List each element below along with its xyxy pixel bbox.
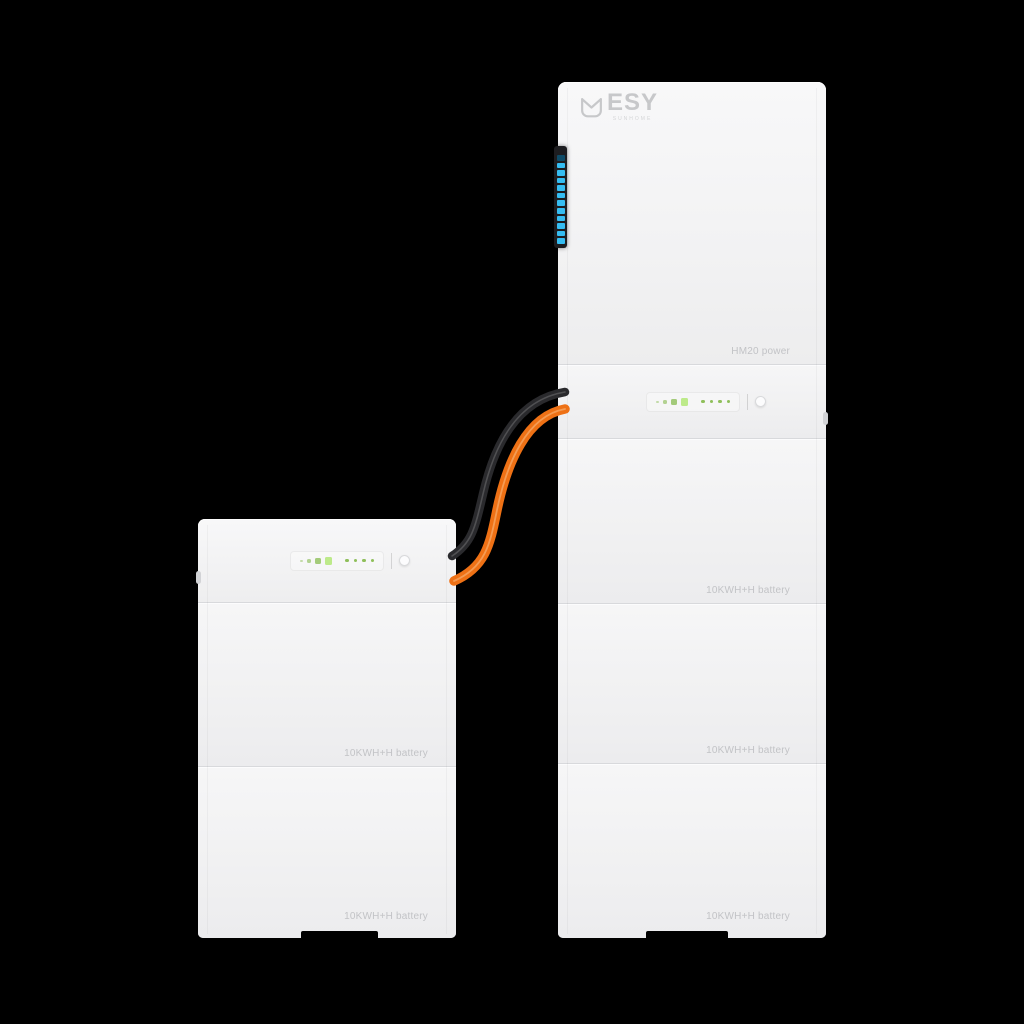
stack-control-module bbox=[198, 519, 456, 602]
status-led-strip bbox=[554, 146, 567, 248]
base-foot-recess bbox=[301, 931, 378, 938]
stack-unit: 10KWH+H battery 10KWH+H battery bbox=[198, 519, 456, 938]
brand-name: ESY bbox=[607, 91, 658, 115]
product-stage: ESY SUNHOME HM20 power 10KWH+H battery bbox=[0, 0, 1024, 1024]
esy-logo: ESY SUNHOME bbox=[578, 91, 658, 122]
dc-cable-black bbox=[452, 392, 565, 556]
dc-cable-orange bbox=[454, 409, 565, 581]
base-foot-recess bbox=[646, 931, 728, 938]
status-led-dots bbox=[345, 559, 374, 563]
status-led-dots bbox=[701, 400, 730, 404]
side-handle-notch bbox=[196, 571, 201, 584]
tower-battery-module-1: 10KWH+H battery bbox=[558, 438, 826, 603]
battery-module-label: 10KWH+H battery bbox=[706, 745, 790, 756]
battery-module-label: 10KWH+H battery bbox=[706, 585, 790, 596]
battery-module-label: 10KWH+H battery bbox=[344, 911, 428, 922]
tower-battery-module-2: 10KWH+H battery bbox=[558, 603, 826, 763]
power-module-label: HM20 power bbox=[731, 346, 790, 357]
tower-control-module bbox=[558, 364, 826, 438]
brand-subtext: SUNHOME bbox=[613, 117, 653, 122]
esy-logo-text: ESY SUNHOME bbox=[607, 91, 658, 122]
led-indicator-box bbox=[290, 551, 384, 571]
indicator-panel bbox=[290, 551, 410, 571]
dc-cable-black-highlight bbox=[452, 392, 565, 556]
indicator-panel bbox=[646, 392, 766, 412]
esy-logo-icon bbox=[578, 94, 605, 121]
battery-module-label: 10KWH+H battery bbox=[344, 748, 428, 759]
battery-level-bars bbox=[656, 398, 688, 406]
dc-cables bbox=[0, 0, 1024, 1024]
side-handle-notch bbox=[823, 412, 828, 425]
battery-level-bars bbox=[300, 557, 332, 565]
battery-module-label: 10KWH+H battery bbox=[706, 911, 790, 922]
dc-cable-orange-highlight bbox=[454, 409, 565, 581]
tower-unit: ESY SUNHOME HM20 power 10KWH+H battery bbox=[558, 82, 826, 938]
indicator-divider bbox=[391, 553, 392, 569]
led-indicator-box bbox=[646, 392, 740, 412]
tower-battery-module-3: 10KWH+H battery bbox=[558, 763, 826, 938]
power-button bbox=[399, 555, 410, 566]
stack-battery-module-1: 10KWH+H battery bbox=[198, 602, 456, 766]
power-button bbox=[755, 396, 766, 407]
indicator-divider bbox=[747, 394, 748, 410]
stack-battery-module-2: 10KWH+H battery bbox=[198, 766, 456, 938]
power-module: ESY SUNHOME HM20 power bbox=[558, 82, 826, 364]
